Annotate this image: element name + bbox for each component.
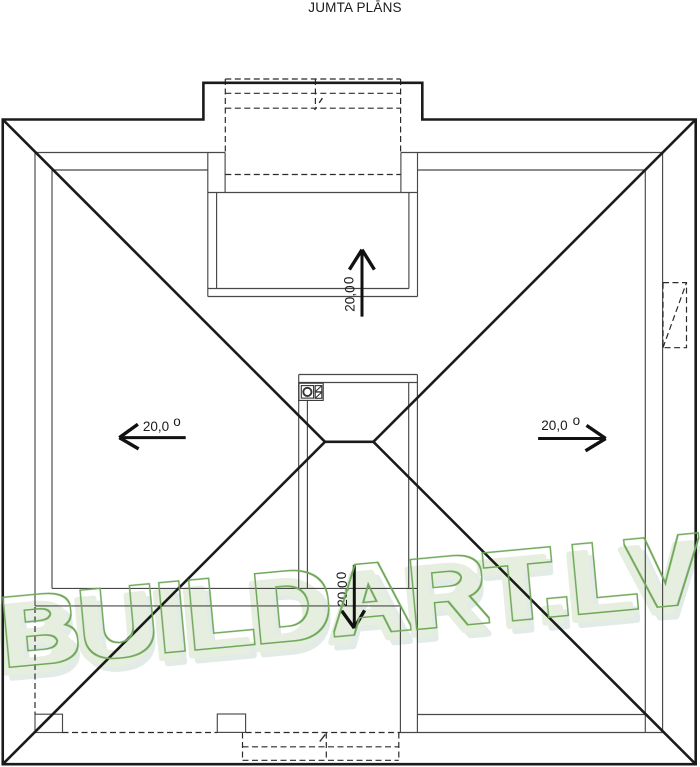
svg-text:o: o — [573, 413, 581, 428]
svg-text:20,0: 20,0 — [541, 418, 567, 433]
svg-text:20,0: 20,0 — [143, 419, 169, 434]
svg-text:o: o — [173, 414, 181, 429]
svg-text:JUMTA PLĀNS: JUMTA PLĀNS — [308, 0, 401, 15]
svg-text:20,0: 20,0 — [342, 285, 357, 311]
svg-text:0: 0 — [341, 277, 356, 285]
